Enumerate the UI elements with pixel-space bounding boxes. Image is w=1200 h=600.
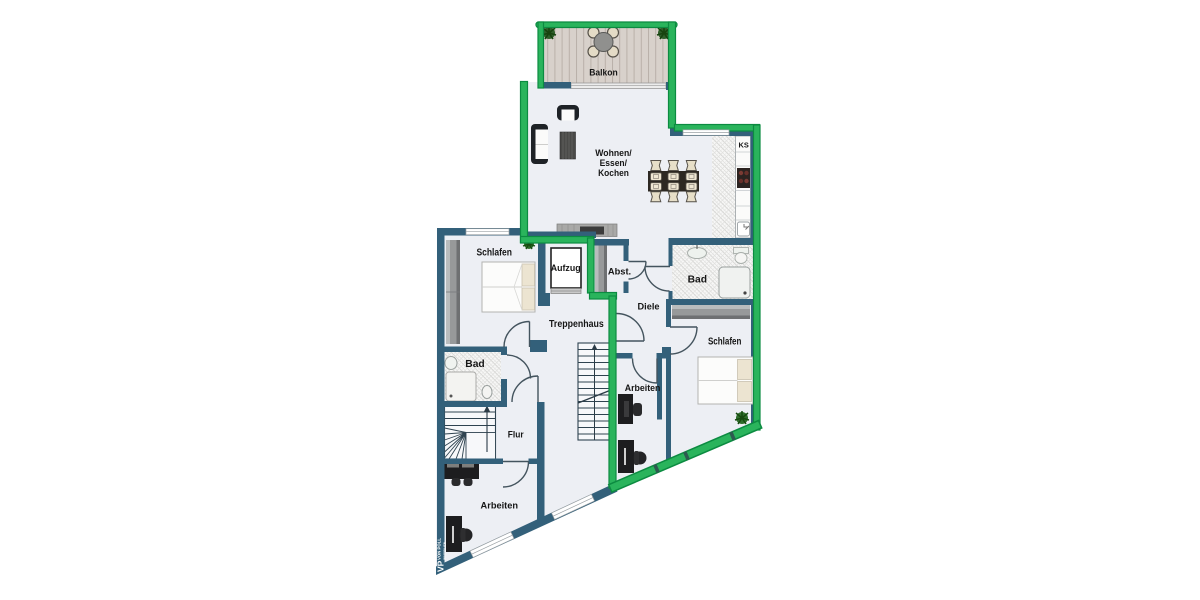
svg-text:Diele: Diele [638,302,660,312]
svg-text:VP: VP [436,560,446,572]
svg-text:Essen/: Essen/ [600,158,628,168]
svg-text:Arbeiten: Arbeiten [625,383,661,393]
svg-text:Arbeiten: Arbeiten [481,500,519,510]
svg-text:KS: KS [739,140,749,149]
svg-text:IMMOBILIEN: IMMOBILIEN [442,542,446,560]
svg-text:Flur: Flur [508,428,524,439]
svg-text:Bad: Bad [465,359,484,370]
svg-text:Treppenhaus: Treppenhaus [549,319,604,330]
svg-text:Schlafen: Schlafen [708,337,742,348]
svg-text:Kochen: Kochen [598,168,629,178]
svg-text:Abst.: Abst. [608,267,631,277]
svg-text:Wohnen/: Wohnen/ [595,148,632,158]
svg-text:VON POLL: VON POLL [436,538,441,560]
svg-text:Bad: Bad [688,274,707,285]
svg-text:Aufzug: Aufzug [551,263,581,273]
svg-text:Schlafen: Schlafen [476,248,512,259]
svg-text:Balkon: Balkon [589,68,618,78]
